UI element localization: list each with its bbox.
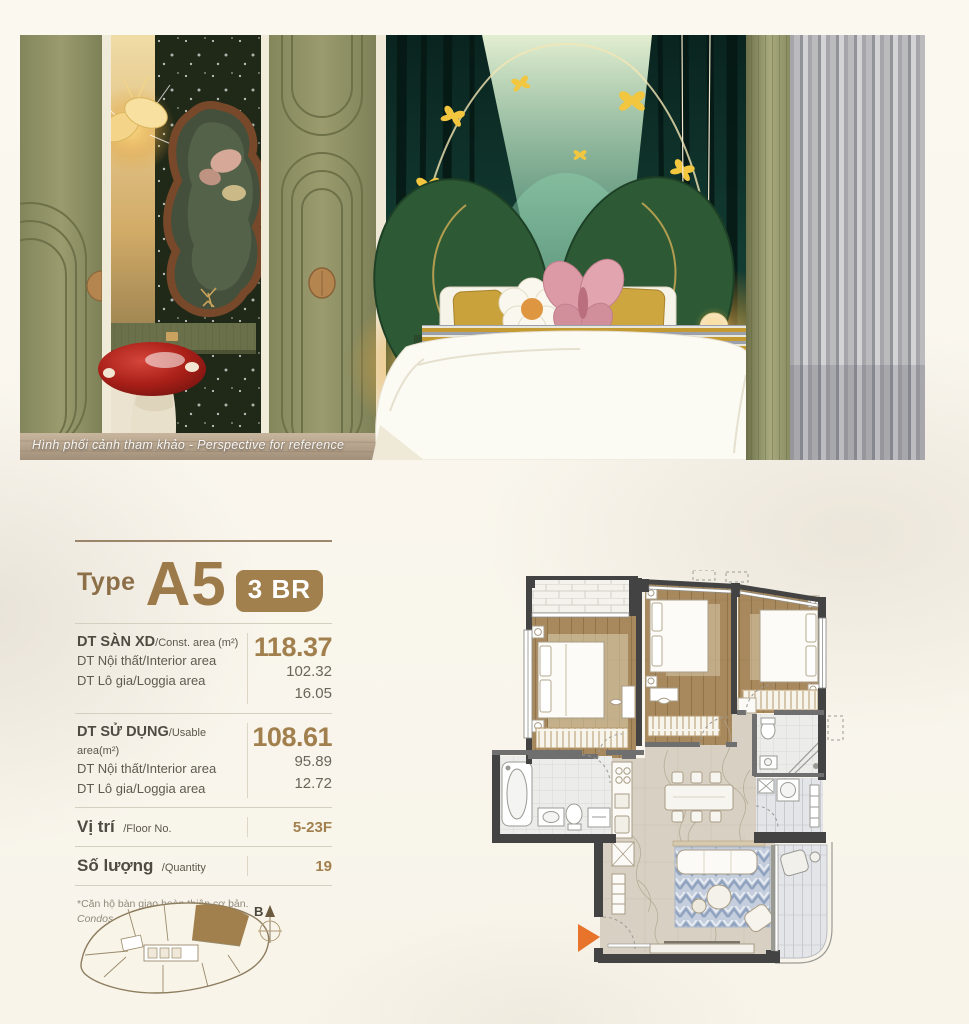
compass-north-label: B (254, 904, 263, 919)
loggia-area-value-2: 12.72 (248, 773, 332, 794)
balcony (775, 842, 832, 963)
construction-area-section: DT SÀN XD/Const. area (m²) DT Nội thất/I… (75, 623, 332, 713)
bedroom-badge: 3 BR (236, 570, 323, 612)
quantity-row: Số lượng /Quantity 19 (75, 846, 332, 885)
hero-photo: Hình phối cảnh tham khảo - Perspective f… (20, 35, 925, 460)
unit-heading: Type A5 3 BR (77, 556, 332, 613)
unit-type-code: A5 (146, 556, 227, 613)
floor-row: Vị trí /Floor No. 5-23F (75, 807, 332, 846)
usable-area-label: DT SỬ DỤNG/Usable area(m²) (77, 723, 247, 759)
compass-north-arrow (265, 905, 275, 917)
curtains (790, 35, 925, 460)
loggia-area-label: DT Lô gia/Loggia area (77, 671, 247, 691)
const-area-label: DT SÀN XD/Const. area (m²) (77, 633, 247, 651)
brochure-page: Hình phối cảnh tham khảo - Perspective f… (0, 0, 969, 1024)
bottom-rule (75, 885, 332, 886)
loggia-area-label-2: DT Lô gia/Loggia area (77, 779, 247, 799)
floor-value: 5-23F (247, 817, 332, 837)
bedroom-1-furniture (532, 626, 635, 748)
wardrobe-left-panel (20, 35, 111, 460)
loggia-area-value: 16.05 (248, 683, 332, 704)
unit-spec-panel: Type A5 3 BR DT SÀN XD/Const. area (m²) … (75, 540, 332, 928)
usable-area-section: DT SỬ DỤNG/Usable area(m²) DT Nội thất/I… (75, 713, 332, 807)
interior-area-value: 102.32 (248, 661, 332, 682)
quantity-value: 19 (247, 856, 332, 876)
floor-label: Vị trí (77, 817, 115, 836)
usable-area-value: 108.61 (248, 723, 332, 751)
quantity-label: Số lượng (77, 856, 153, 875)
floor-label-en: /Floor No. (123, 823, 171, 835)
entry-arrow-icon (578, 924, 600, 952)
interior-area-label: DT Nội thất/Interior area (77, 651, 247, 671)
const-area-value: 118.37 (248, 633, 332, 661)
building-key-plan: B (68, 893, 283, 1021)
quantity-label-en: /Quantity (162, 862, 206, 874)
olive-column (746, 35, 790, 460)
interior-area-label-2: DT Nội thất/Interior area (77, 759, 247, 779)
interior-area-value-2: 95.89 (248, 751, 332, 772)
heading-rule (75, 540, 332, 542)
loggia-top (530, 578, 636, 616)
floor-plan (488, 570, 848, 970)
wavy-mirror (167, 105, 264, 313)
unit-type-label: Type (77, 568, 136, 597)
bedroom-render-illustration (20, 35, 925, 460)
photo-caption: Hình phối cảnh tham khảo - Perspective f… (32, 438, 344, 452)
